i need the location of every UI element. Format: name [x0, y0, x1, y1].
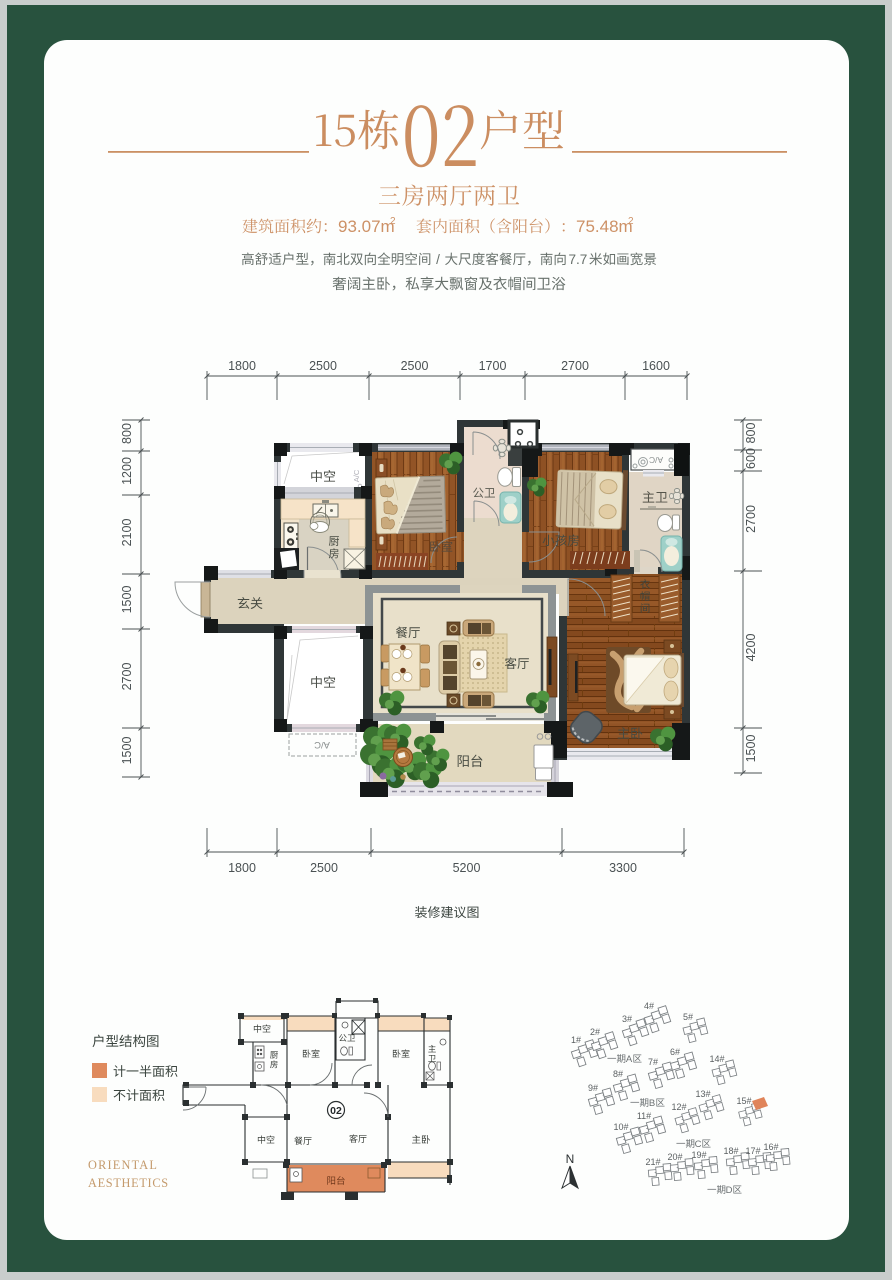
- svg-text:2: 2: [390, 216, 396, 227]
- svg-text:A/C: A/C: [352, 469, 361, 482]
- svg-text:75.48m: 75.48m: [576, 217, 633, 236]
- svg-text:17#: 17#: [745, 1146, 760, 1156]
- svg-text:2100: 2100: [120, 519, 134, 547]
- svg-text:7.7: 7.7: [568, 252, 587, 267]
- svg-text:600: 600: [744, 448, 758, 469]
- svg-text:14#: 14#: [709, 1054, 724, 1064]
- svg-text:1500: 1500: [120, 737, 134, 765]
- svg-text:1800: 1800: [228, 861, 256, 875]
- svg-text:2700: 2700: [561, 359, 589, 373]
- svg-text:7#: 7#: [648, 1057, 658, 1067]
- svg-text:3300: 3300: [609, 861, 637, 875]
- svg-text:13#: 13#: [695, 1089, 710, 1099]
- svg-text:2700: 2700: [120, 663, 134, 691]
- svg-text:1600: 1600: [642, 359, 670, 373]
- svg-text:2#: 2#: [590, 1027, 600, 1037]
- svg-text:D: D: [726, 1185, 733, 1196]
- svg-text:16#: 16#: [763, 1142, 778, 1152]
- svg-text:B: B: [649, 1098, 655, 1109]
- svg-text:02: 02: [330, 1105, 342, 1117]
- svg-text:A/C: A/C: [314, 739, 330, 750]
- svg-text:4200: 4200: [744, 634, 758, 662]
- svg-text:C: C: [695, 1139, 702, 1150]
- svg-text:19#: 19#: [691, 1150, 706, 1160]
- svg-text:18#: 18#: [723, 1146, 738, 1156]
- svg-text:1200: 1200: [120, 457, 134, 485]
- svg-text:11#: 11#: [637, 1111, 651, 1121]
- svg-text:ORIENTAL: ORIENTAL: [88, 1158, 158, 1172]
- svg-text:15#: 15#: [736, 1096, 751, 1106]
- svg-text:1800: 1800: [228, 359, 256, 373]
- svg-text:A: A: [626, 1054, 633, 1065]
- svg-text:N: N: [566, 1152, 575, 1166]
- svg-text:10#: 10#: [613, 1122, 628, 1132]
- svg-text:1500: 1500: [744, 735, 758, 763]
- svg-text:/: /: [436, 252, 440, 267]
- svg-text:6#: 6#: [670, 1047, 680, 1057]
- svg-text:800: 800: [744, 423, 758, 444]
- svg-text:5#: 5#: [683, 1012, 693, 1022]
- svg-text:2700: 2700: [744, 505, 758, 533]
- svg-text:A/C: A/C: [649, 455, 663, 465]
- svg-text:12#: 12#: [671, 1102, 686, 1112]
- svg-text:3#: 3#: [622, 1014, 632, 1024]
- svg-text:1#: 1#: [571, 1035, 581, 1045]
- svg-text:93.07m: 93.07m: [338, 217, 395, 236]
- svg-text:2500: 2500: [401, 359, 429, 373]
- svg-text:AESTHETICS: AESTHETICS: [88, 1176, 169, 1190]
- svg-text:8#: 8#: [613, 1069, 623, 1079]
- svg-text:2: 2: [628, 216, 634, 227]
- svg-text:1700: 1700: [479, 359, 507, 373]
- svg-text:20#: 20#: [667, 1152, 682, 1162]
- svg-text:2500: 2500: [310, 861, 338, 875]
- svg-text:1500: 1500: [120, 586, 134, 614]
- svg-text:4#: 4#: [644, 1001, 654, 1011]
- svg-text:2500: 2500: [309, 359, 337, 373]
- svg-text:21#: 21#: [645, 1157, 660, 1167]
- svg-text:9#: 9#: [588, 1083, 598, 1093]
- svg-text:800: 800: [120, 423, 134, 444]
- svg-text:5200: 5200: [453, 861, 481, 875]
